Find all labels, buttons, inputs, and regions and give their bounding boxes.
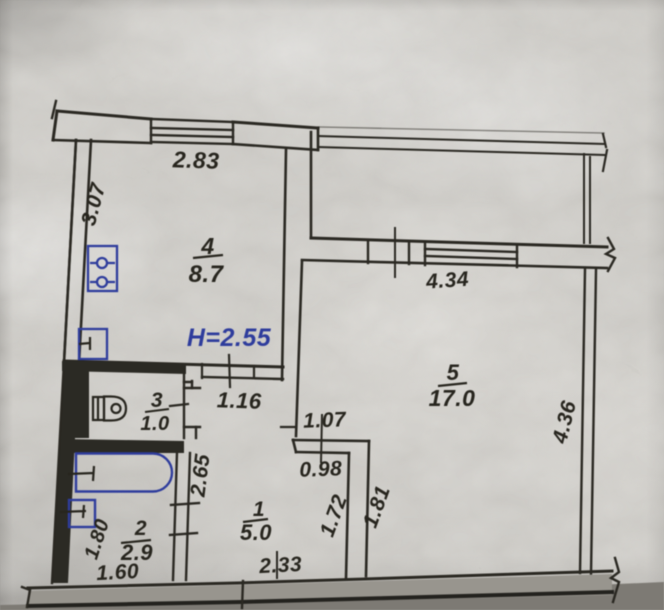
svg-text:2.33: 2.33: [258, 553, 303, 578]
svg-text:8.7: 8.7: [189, 261, 225, 288]
svg-text:4.34: 4.34: [424, 268, 469, 294]
svg-text:5.0: 5.0: [240, 520, 272, 545]
svg-text:2.83: 2.83: [171, 146, 220, 174]
svg-text:1: 1: [253, 498, 265, 521]
svg-text:2: 2: [134, 517, 147, 540]
svg-text:1.60: 1.60: [96, 560, 140, 585]
svg-text:1.07: 1.07: [303, 408, 347, 433]
svg-text:17.0: 17.0: [429, 385, 476, 411]
svg-text:Н=2.55: Н=2.55: [187, 324, 272, 352]
svg-text:5: 5: [447, 360, 460, 385]
svg-text:1.0: 1.0: [140, 413, 169, 435]
svg-text:1.16: 1.16: [216, 387, 262, 414]
svg-text:3: 3: [151, 389, 163, 412]
svg-text:0.98: 0.98: [299, 457, 343, 481]
